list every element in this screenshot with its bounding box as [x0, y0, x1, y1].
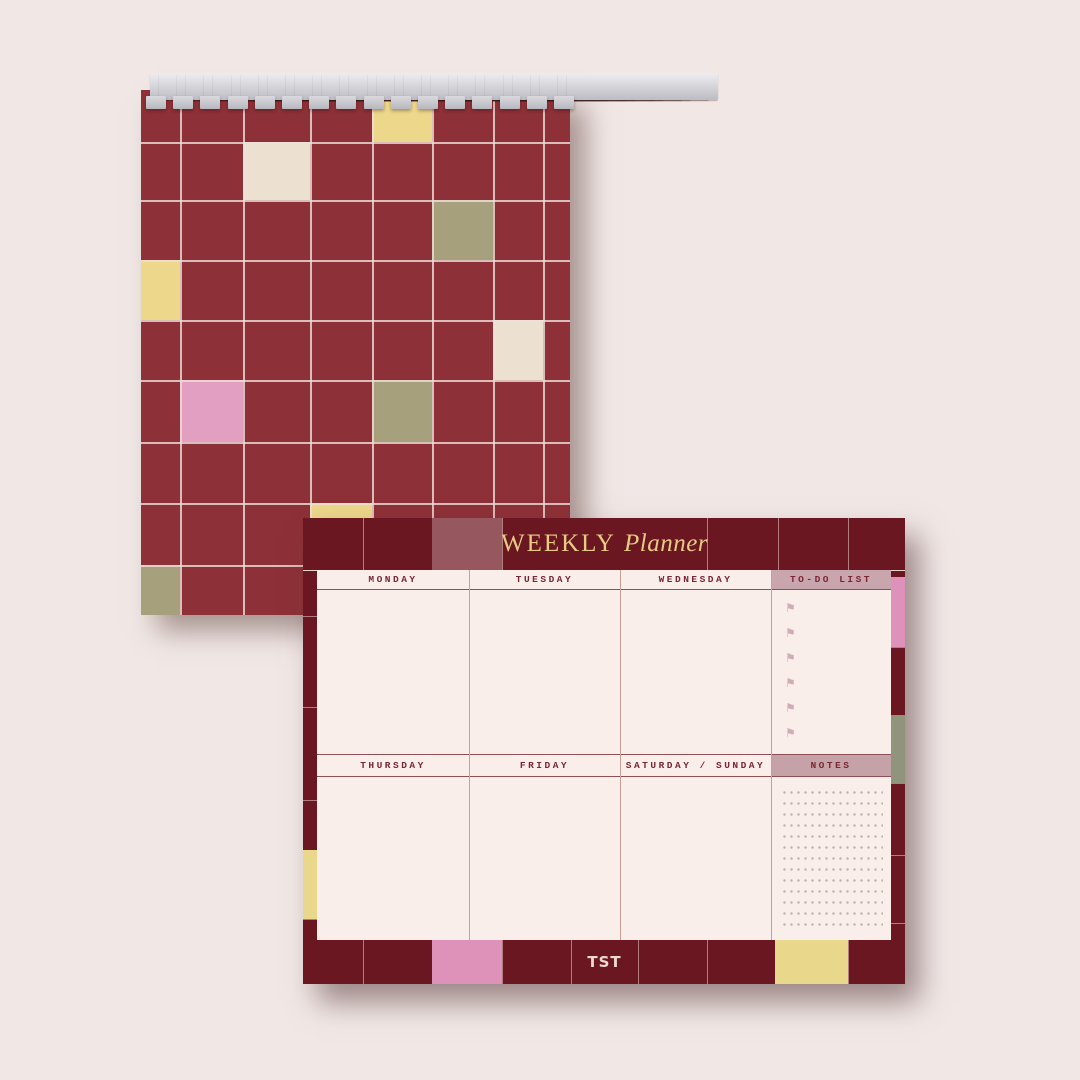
column-separator — [469, 570, 470, 940]
spiral-wire-icon — [567, 73, 718, 100]
notebook-grid-line — [141, 380, 570, 382]
spiral-tab-icon — [527, 96, 547, 109]
product-mockup-scene: { "scene": { "description": "Stationery … — [0, 0, 1080, 1080]
border-cell-p_pink — [432, 940, 502, 984]
planner-content-sheet: MONDAY TUESDAY WEDNESDAY TO-DO LIST THUR… — [317, 570, 891, 940]
weekly-planner-pad: WEEKLY Planner MONDAY TUESDAY WEDNESDAY … — [303, 518, 905, 984]
notes-dot-grid — [781, 787, 883, 930]
spiral-binding-loop — [199, 73, 221, 113]
todo-flag-icon: ⚑ — [785, 702, 796, 714]
border-grid-line — [303, 919, 317, 920]
border-grid-line — [502, 518, 503, 570]
spiral-binding-loop — [254, 73, 276, 113]
spiral-tab-icon — [391, 96, 411, 109]
spiral-tab-icon — [282, 96, 302, 109]
tuesday-header: TUESDAY — [469, 570, 620, 589]
border-grid-line — [303, 707, 317, 708]
spiral-binding-loop — [308, 73, 330, 113]
column-separator — [620, 570, 621, 940]
spiral-tab-icon — [500, 96, 520, 109]
spiral-binding-loop — [172, 73, 194, 113]
border-grid-line — [891, 647, 905, 648]
spiral-binding-loop — [499, 73, 521, 113]
spiral-binding-loop — [227, 73, 249, 113]
wednesday-header: WEDNESDAY — [620, 570, 771, 589]
notebook-grid-line — [141, 503, 570, 505]
thursday-header: THURSDAY — [317, 755, 469, 776]
monday-header: MONDAY — [317, 570, 469, 589]
notebook-grid-line — [141, 320, 570, 322]
spiral-binding-loop — [553, 73, 575, 113]
planner-top-border: WEEKLY Planner — [303, 518, 905, 571]
notebook-grid-line — [141, 442, 570, 444]
spiral-tab-icon — [255, 96, 275, 109]
border-grid-line — [778, 518, 779, 570]
border-cell-p_pink — [891, 577, 905, 647]
todo-list-header: TO-DO LIST — [771, 570, 891, 589]
planner-title: WEEKLY Planner — [502, 518, 707, 570]
spiral-tab-icon — [364, 96, 384, 109]
notebook-grid-line — [180, 90, 182, 615]
border-grid-line — [848, 518, 849, 570]
spiral-tab-icon — [472, 96, 492, 109]
notebook-grid-line — [141, 142, 570, 144]
border-grid-line — [707, 940, 708, 984]
notebook-grid-line — [243, 90, 245, 615]
notebook-grid-line — [141, 260, 570, 262]
spiral-tab-icon — [336, 96, 356, 109]
spiral-tab-icon — [200, 96, 220, 109]
notebook-spiral-binding — [141, 73, 570, 113]
todo-flag-icon: ⚑ — [785, 652, 796, 664]
spiral-binding-loop — [145, 73, 167, 113]
spiral-tab-icon — [146, 96, 166, 109]
saturday-sunday-header: SATURDAY / SUNDAY — [620, 755, 771, 776]
todo-flag-icon: ⚑ — [785, 602, 796, 614]
todo-flag-icon: ⚑ — [785, 677, 796, 689]
border-grid-line — [303, 616, 317, 617]
border-grid-line — [363, 518, 364, 570]
border-grid-line — [707, 518, 708, 570]
spiral-binding-loop — [444, 73, 466, 113]
border-grid-line — [891, 855, 905, 856]
todo-flag-list: ⚑⚑⚑⚑⚑⚑ — [771, 589, 891, 754]
spiral-binding-loop — [281, 73, 303, 113]
spiral-binding-loop — [417, 73, 439, 113]
spiral-tab-icon — [309, 96, 329, 109]
spiral-binding-loop — [471, 73, 493, 113]
spiral-tab-icon — [173, 96, 193, 109]
border-grid-line — [891, 783, 905, 784]
border-grid-line — [638, 940, 639, 984]
spiral-binding-loop — [390, 73, 412, 113]
planner-header-row-1: MONDAY TUESDAY WEDNESDAY TO-DO LIST — [317, 570, 891, 590]
border-grid-line — [848, 940, 849, 984]
friday-header: FRIDAY — [469, 755, 620, 776]
todo-flag-icon: ⚑ — [785, 727, 796, 739]
border-cell-p_yellow — [303, 850, 317, 919]
brand-logo: TST — [571, 940, 638, 984]
border-grid-line — [363, 940, 364, 984]
spiral-tab-icon — [445, 96, 465, 109]
border-cell-mauve — [432, 518, 502, 570]
notebook-grid-line — [141, 200, 570, 202]
notes-header: NOTES — [771, 755, 891, 776]
spiral-binding-loop — [526, 73, 548, 113]
border-grid-line — [891, 923, 905, 924]
spiral-binding-loop — [363, 73, 385, 113]
border-cell-p_olive — [891, 715, 905, 783]
border-grid-line — [303, 800, 317, 801]
planner-header-row-2: THURSDAY FRIDAY SATURDAY / SUNDAY NOTES — [317, 754, 891, 777]
planner-title-main: WEEKLY — [501, 530, 616, 558]
border-grid-line — [502, 940, 503, 984]
border-cell-p_yellow — [775, 940, 848, 984]
planner-title-accent: Planner — [624, 530, 708, 558]
todo-flag-icon: ⚑ — [785, 627, 796, 639]
spiral-tab-icon — [554, 96, 574, 109]
spiral-binding-loop — [335, 73, 357, 113]
spiral-tab-icon — [418, 96, 438, 109]
spiral-tab-icon — [228, 96, 248, 109]
